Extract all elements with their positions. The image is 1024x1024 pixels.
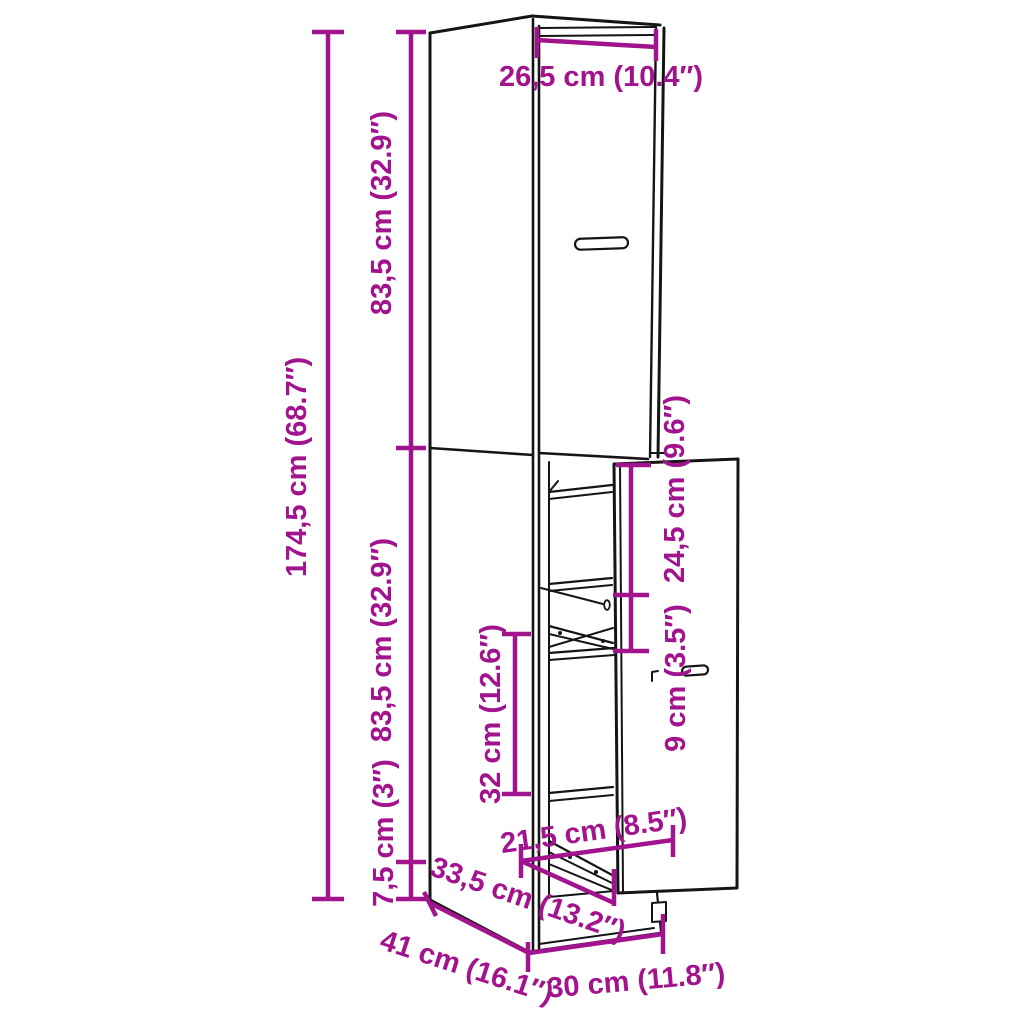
lower-basket-rim-front — [549, 795, 613, 801]
basket-rim-top — [549, 578, 612, 584]
door-top-edge — [539, 35, 656, 36]
dim-label-total-height: 174,5 cm (68.7″) — [281, 357, 313, 577]
drawer-slide-cross — [549, 628, 613, 647]
upper-door-bottom-edge — [539, 453, 648, 459]
slide-roller — [558, 631, 562, 635]
basket-slide-rail — [541, 588, 603, 604]
top-edge — [532, 16, 660, 25]
cabinet-dimension-diagram: 26,5 cm (10.4″) 83,5 cm (32.9″) 174,5 cm… — [0, 0, 1024, 1024]
basket-rim-front — [549, 585, 612, 591]
dim-total-height — [312, 32, 344, 899]
dim-section-heights — [396, 32, 426, 899]
shelf-front-edge — [549, 492, 612, 499]
dim-label-plinth-height: 7,5 cm (3″) — [368, 759, 400, 907]
dim-line-top-width — [537, 40, 656, 47]
side-panel-division-line — [430, 448, 533, 455]
dim-label-cabinet-width: 30 cm (11.8″) — [546, 957, 726, 1004]
shelf-top-edge — [549, 485, 612, 492]
top-left-edge — [430, 16, 532, 33]
front-top-edge — [539, 27, 656, 28]
cabinet-line-art — [430, 16, 738, 952]
dim-label-pullout-top-clearance: 24,5 cm (9.6″) — [659, 395, 691, 583]
basket-bottom-top-edge — [549, 648, 614, 653]
slide-roller — [601, 639, 605, 643]
cam-lock-detail — [604, 600, 610, 610]
dim-label-shelf-clearance: 32 cm (12.6″) — [475, 624, 507, 804]
dim-label-upper-section-height: 83,5 cm (32.9″) — [366, 111, 398, 315]
slide-roller — [594, 870, 598, 874]
lower-basket-rim-top — [549, 787, 613, 793]
dim-label-basket-height: 9 cm (3.5″) — [660, 604, 692, 752]
basket-bottom-front-edge — [549, 655, 614, 660]
diagram-canvas: 26,5 cm (10.4″) 83,5 cm (32.9″) 174,5 cm… — [0, 0, 1024, 1024]
dim-label-top-width: 26,5 cm (10.4″) — [499, 61, 703, 93]
dim-label-lower-section-height: 83,5 cm (32.9″) — [366, 538, 398, 742]
dim-top-width — [537, 27, 656, 61]
upper-door-handle — [575, 237, 628, 250]
